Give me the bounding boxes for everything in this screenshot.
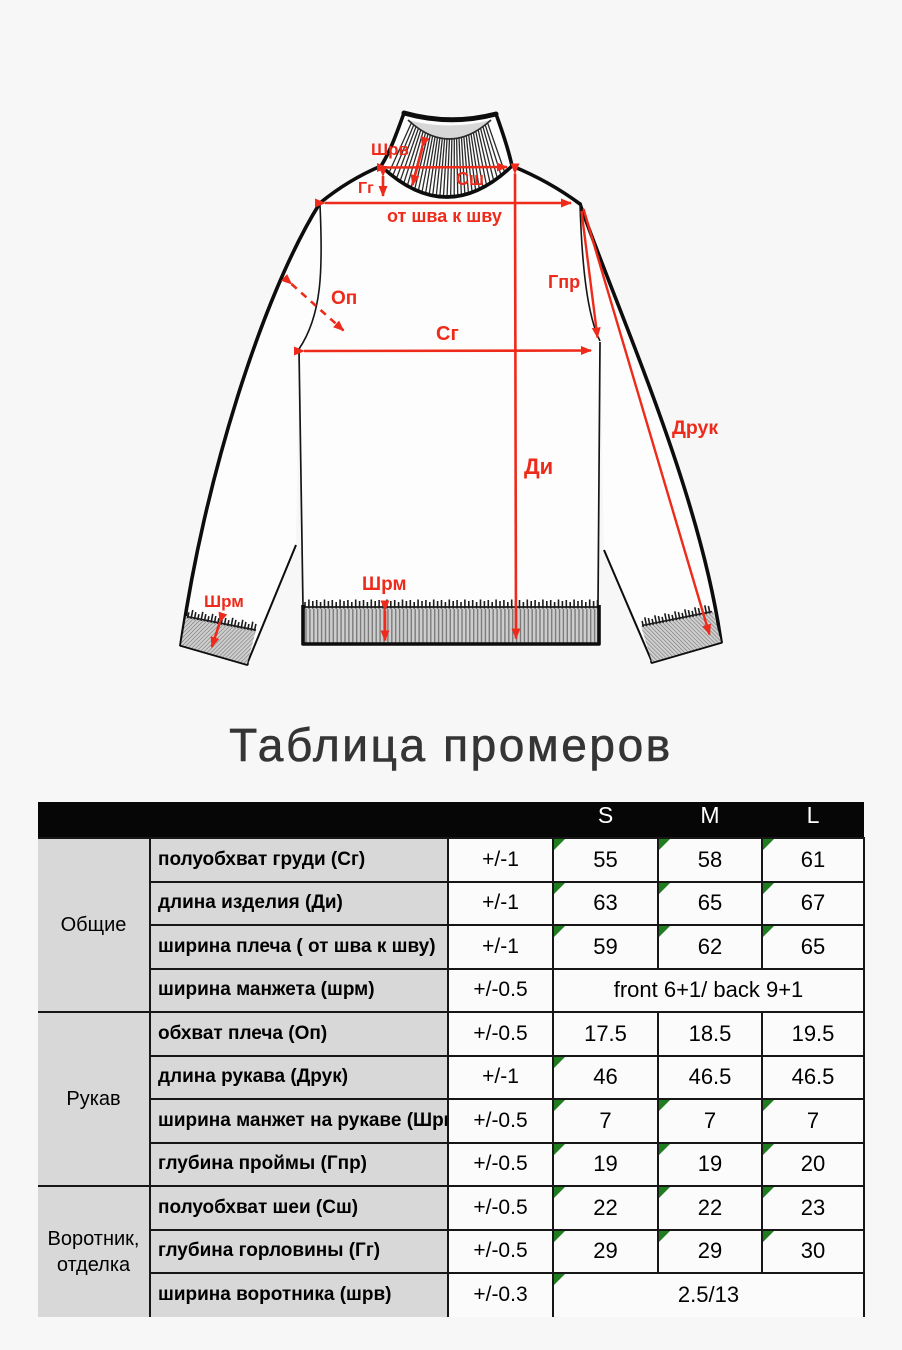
svg-text:Шрм: Шрм (204, 592, 244, 611)
svg-text:Шрв: Шрв (371, 140, 409, 159)
svg-text:Гг: Гг (358, 180, 374, 197)
svg-text:Ди: Ди (524, 454, 553, 479)
svg-text:Шрм: Шрм (362, 574, 407, 595)
svg-text:Сш: Сш (456, 169, 484, 189)
svg-text:Сг: Сг (436, 323, 459, 345)
svg-text:Друк: Друк (672, 417, 718, 439)
svg-text:от шва к шву: от шва к шву (387, 206, 502, 226)
svg-text:Оп: Оп (331, 288, 357, 309)
svg-text:Гпр: Гпр (548, 272, 580, 292)
